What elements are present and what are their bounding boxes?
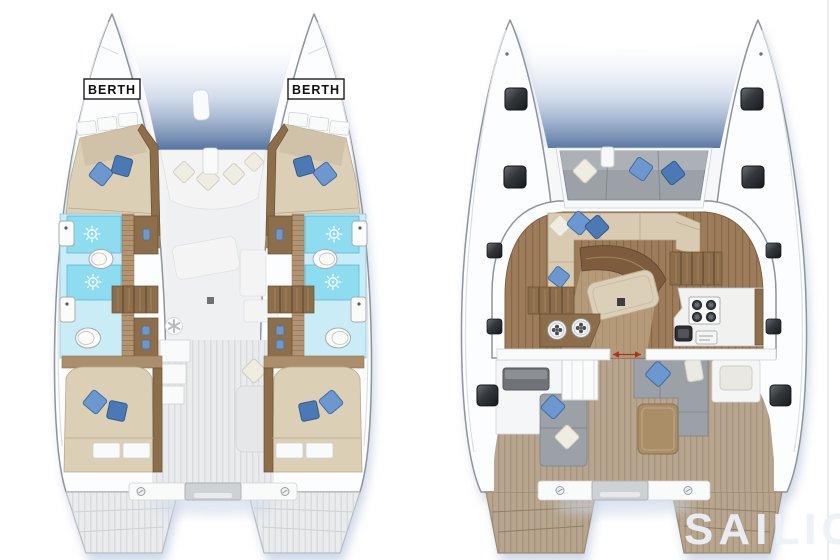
aft-bridge-deck	[152, 340, 274, 483]
round-sink-icon	[572, 319, 591, 338]
berth-label-text: BERTH	[292, 83, 340, 97]
window-divider	[192, 89, 210, 120]
deck-hatch-icon	[766, 319, 781, 334]
deck-hatch-icon	[487, 319, 502, 334]
bolt-icon	[684, 487, 692, 495]
companionway-stairs-icon	[528, 287, 574, 314]
foredeck-lounge	[556, 147, 712, 208]
bow-shadow	[516, 30, 752, 148]
bolt-icon	[137, 488, 145, 496]
deck-hatch-icon	[770, 385, 791, 406]
floorplan-canvas: BERTH BERTH	[0, 0, 840, 560]
deck-hatch-icon	[741, 88, 763, 110]
deck-hatch-icon	[742, 166, 764, 188]
cockpit-steps	[562, 360, 598, 400]
aft-cockpit	[494, 356, 774, 492]
deck-hatch-icon	[487, 243, 502, 258]
stove-burner-icon	[692, 300, 701, 309]
port-hull-interior	[59, 112, 162, 472]
catamaran-floorplan-image: BERTH BERTH	[0, 0, 840, 560]
round-sink-icon	[548, 321, 567, 340]
deck-hatch-icon	[477, 385, 498, 406]
main-deck-plan	[461, 20, 806, 553]
starboard-hull-interior	[264, 112, 367, 472]
lower-deck-plan: BERTH BERTH	[55, 14, 372, 553]
stove-burner-icon	[706, 312, 715, 321]
companionway-stairs-icon	[670, 252, 722, 285]
saloon-aft-wall	[646, 349, 776, 360]
stove-burner-icon	[706, 300, 715, 309]
bow-shadow	[124, 28, 302, 150]
berth-label-port: BERTH	[84, 79, 140, 99]
berth-label-starboard: BERTH	[288, 79, 344, 99]
bolt-icon	[556, 487, 564, 495]
saloon-aft-wall	[497, 349, 610, 360]
saloon	[492, 201, 776, 360]
berth-label-text: BERTH	[88, 83, 136, 97]
deck-hatch-icon	[766, 243, 781, 258]
watermark: SAILICA	[684, 505, 840, 555]
ceiling-fan-icon	[166, 318, 183, 335]
deck-hatch-icon	[504, 166, 526, 188]
oven	[696, 331, 717, 344]
deck-hatch-icon	[505, 88, 527, 110]
bolt-icon	[281, 488, 289, 496]
stove-burner-icon	[692, 312, 701, 321]
cockpit-table	[638, 404, 678, 454]
